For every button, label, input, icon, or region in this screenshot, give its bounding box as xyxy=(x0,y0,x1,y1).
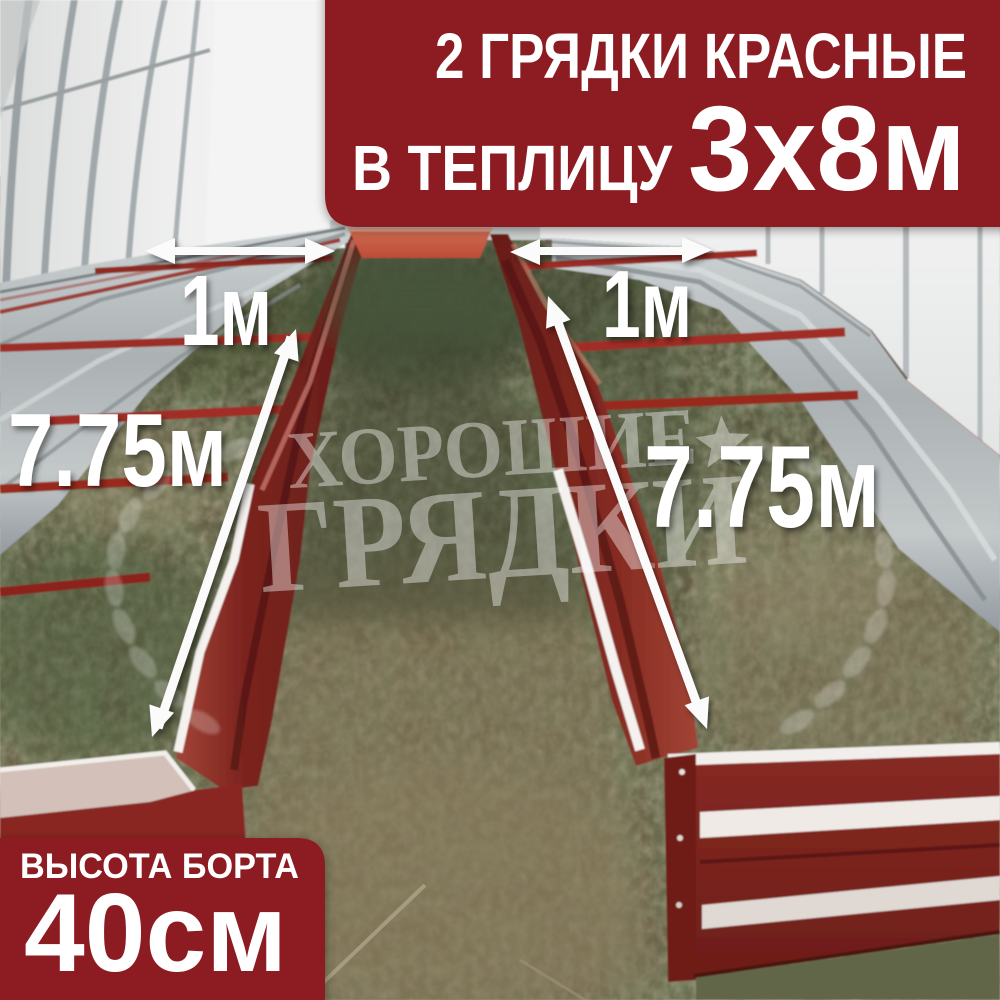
svg-text:В ТЕПЛИЦУ: В ТЕПЛИЦУ xyxy=(352,132,673,204)
svg-text:40см: 40см xyxy=(24,871,287,995)
svg-text:7.75м: 7.75м xyxy=(644,421,880,552)
svg-text:1м: 1м xyxy=(180,255,272,367)
svg-text:7.75м: 7.75м xyxy=(8,393,227,509)
svg-text:1м: 1м xyxy=(602,251,692,358)
svg-text:3х8м: 3х8м xyxy=(688,80,966,216)
